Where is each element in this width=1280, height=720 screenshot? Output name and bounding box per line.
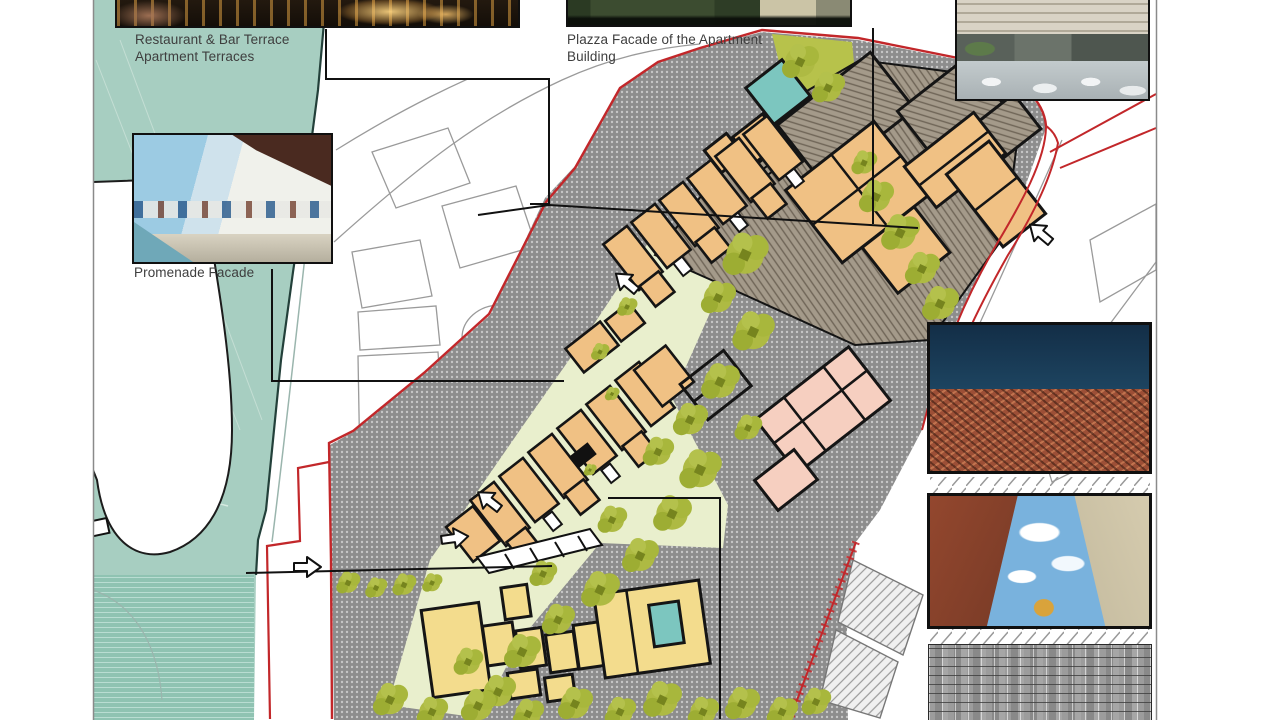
photo-image	[930, 389, 1149, 471]
street-canyon-photo	[927, 493, 1152, 629]
roof-lounge-photo	[955, 0, 1150, 101]
pool-south	[649, 601, 685, 647]
caption-restaurant-bar-terrace: Restaurant & Bar Terrace Apartment Terra…	[135, 31, 289, 66]
photo-image	[929, 645, 1151, 720]
caption-line: Building	[567, 48, 762, 65]
photo-image	[568, 0, 850, 25]
entry-arrow-west	[294, 557, 321, 577]
stone-wall-photo	[928, 644, 1152, 720]
photo-image	[134, 201, 331, 218]
caption-line: Promenade Facade	[134, 264, 254, 281]
photo-image	[117, 0, 518, 26]
photo-image	[957, 34, 1148, 62]
caption-line: Plazza Facade of the Apartment	[567, 31, 762, 48]
masterplan-sheet: Restaurant & Bar Terrace Apartment Terra…	[0, 0, 1280, 720]
aerial-old-town-photo	[927, 322, 1152, 474]
photo-image	[957, 0, 1148, 34]
caption-line: Apartment Terraces	[135, 48, 289, 65]
promenade-facade-photo	[132, 133, 333, 264]
photo-image	[930, 325, 1149, 389]
photo-image	[957, 61, 1148, 99]
caption-plazza-facade: Plazza Facade of the Apartment Building	[567, 31, 762, 66]
boat-symbol	[87, 518, 110, 537]
plaza-facade-photo	[566, 0, 852, 27]
restaurant-bar-terrace-photo	[115, 0, 520, 28]
caption-promenade-facade: Promenade Facade	[134, 264, 254, 281]
caption-line: Restaurant & Bar Terrace	[135, 31, 289, 48]
